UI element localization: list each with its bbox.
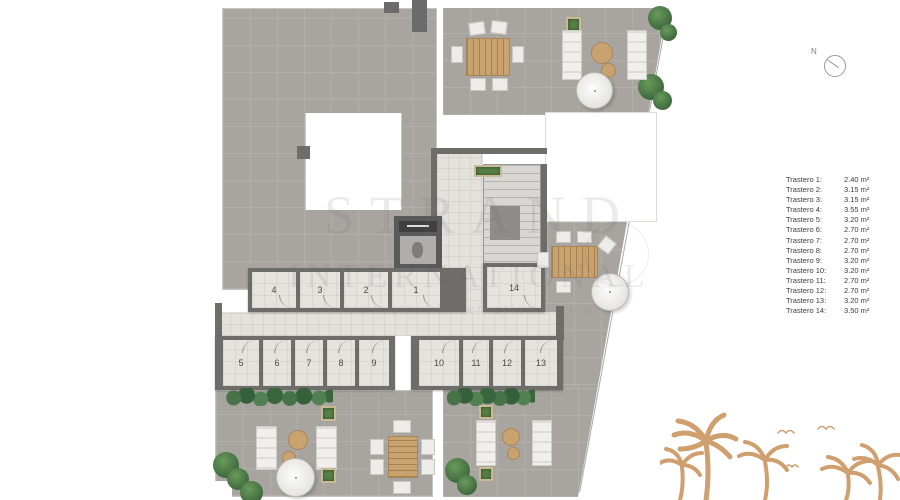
- legend-row: Trastero 1: 2.40 m²: [786, 175, 878, 185]
- watermark-brand: STRAND: [290, 184, 670, 246]
- rooftop-chimney: [412, 0, 427, 32]
- storage-room: 13: [525, 340, 557, 386]
- chair: [512, 46, 524, 63]
- legend-value: 2.70 m²: [844, 246, 878, 256]
- planter: [321, 468, 336, 483]
- dining-table: [388, 436, 418, 478]
- legend-row: Trastero 4: 3.55 m²: [786, 205, 878, 215]
- legend-label: Trastero 13:: [786, 296, 844, 306]
- chair: [468, 21, 486, 36]
- legend-value: 3.15 m²: [844, 195, 878, 205]
- storage-block-bottom-left: 5 6 7 8 9: [215, 336, 395, 390]
- planter: [321, 406, 336, 421]
- chair: [451, 46, 463, 63]
- legend-row: Trastero 8: 2.70 m²: [786, 246, 878, 256]
- room-number: 12: [493, 340, 521, 386]
- storage-room: 7: [295, 340, 323, 386]
- room-number: 9: [359, 340, 389, 386]
- compass-north-label: N: [811, 47, 817, 56]
- legend-value: 2.70 m²: [844, 225, 878, 235]
- legend-label: Trastero 9:: [786, 256, 844, 266]
- planter: [479, 467, 493, 481]
- legend-value: 2.70 m²: [844, 276, 878, 286]
- storage-room: 12: [493, 340, 521, 386]
- floor-plan-canvas: 4 3 2 1 14 5 6 7 8 9 10 11 12: [0, 0, 900, 500]
- side-table: [591, 42, 613, 64]
- legend-label: Trastero 7:: [786, 236, 844, 246]
- legend-label: Trastero 14:: [786, 306, 844, 316]
- storage-room: 9: [359, 340, 389, 386]
- chair: [421, 459, 435, 475]
- core-wall-top: [431, 148, 547, 154]
- sun-lounger: [562, 30, 582, 80]
- bush: [660, 24, 677, 41]
- chair: [490, 20, 507, 35]
- sun-lounger: [627, 30, 647, 80]
- sun-lounger: [256, 426, 277, 470]
- room-number: 6: [263, 340, 291, 386]
- corridor-left-wall: [215, 303, 222, 337]
- legend-row: Trastero 11: 2.70 m²: [786, 276, 878, 286]
- storage-room: 8: [327, 340, 355, 386]
- legend-value: 3.50 m²: [844, 306, 878, 316]
- storage-block-bottom-right: 10 11 12 13: [411, 336, 563, 390]
- storage-room: 11: [463, 340, 489, 386]
- legend-label: Trastero 8:: [786, 246, 844, 256]
- legend-label: Trastero 11:: [786, 276, 844, 286]
- room-number: 11: [463, 340, 489, 386]
- legend-label: Trastero 6:: [786, 225, 844, 235]
- chair: [492, 78, 508, 91]
- roof-hatch: [297, 146, 310, 159]
- legend-value: 3.15 m²: [844, 185, 878, 195]
- legend-row: Trastero 7: 2.70 m²: [786, 236, 878, 246]
- watermark-brand-sub: INTERNATIONAL: [250, 258, 690, 296]
- planter: [479, 405, 493, 419]
- watermark-website: www.strandinternational.com: [320, 302, 620, 318]
- hedge: [447, 388, 535, 406]
- legend-row: Trastero 10: 3.20 m²: [786, 266, 878, 276]
- legend-value: 3.20 m²: [844, 296, 878, 306]
- chair: [393, 420, 411, 433]
- side-table: [507, 447, 520, 460]
- chair: [470, 78, 486, 91]
- hedge: [225, 388, 333, 406]
- dining-table: [466, 38, 510, 76]
- legend-label: Trastero 3:: [786, 195, 844, 205]
- area-legend: Trastero 1: 2.40 m² Trastero 2: 3.15 m² …: [786, 175, 878, 316]
- chair: [370, 459, 384, 475]
- room-number: 10: [419, 340, 459, 386]
- legend-value: 3.55 m²: [844, 205, 878, 215]
- parasol: [576, 72, 613, 109]
- legend-value: 2.40 m²: [844, 175, 878, 185]
- bush: [240, 481, 263, 500]
- legend-label: Trastero 1:: [786, 175, 844, 185]
- legend-label: Trastero 4:: [786, 205, 844, 215]
- legend-label: Trastero 5:: [786, 215, 844, 225]
- legend-value: 3.20 m²: [844, 256, 878, 266]
- legend-row: Trastero 9: 3.20 m²: [786, 256, 878, 266]
- chair: [393, 481, 411, 494]
- legend-value: 3.20 m²: [844, 266, 878, 276]
- legend-value: 2.70 m²: [844, 286, 878, 296]
- legend-row: Trastero 12: 2.70 m²: [786, 286, 878, 296]
- room-number: 13: [525, 340, 557, 386]
- chair: [370, 439, 384, 455]
- legend-label: Trastero 10:: [786, 266, 844, 276]
- legend-label: Trastero 12:: [786, 286, 844, 296]
- side-table: [288, 430, 308, 450]
- legend-value: 2.70 m²: [844, 236, 878, 246]
- legend-row: Trastero 14: 3.50 m²: [786, 306, 878, 316]
- legend-row: Trastero 13: 3.20 m²: [786, 296, 878, 306]
- chair: [421, 439, 435, 455]
- legend-row: Trastero 2: 3.15 m²: [786, 185, 878, 195]
- room-number: 5: [223, 340, 259, 386]
- stair-planter: [474, 165, 502, 177]
- legend-row: Trastero 6: 2.70 m²: [786, 225, 878, 235]
- legend-row: Trastero 3: 3.15 m²: [786, 195, 878, 205]
- room-number: 7: [295, 340, 323, 386]
- storage-room: 5: [223, 340, 259, 386]
- parasol: [276, 458, 315, 497]
- storage-room: 10: [419, 340, 459, 386]
- sun-lounger: [316, 426, 337, 470]
- room-number: 8: [327, 340, 355, 386]
- rooftop-vent: [384, 2, 399, 13]
- sun-lounger: [476, 420, 496, 466]
- sun-lounger: [532, 420, 552, 466]
- palm-trees-graphic: [660, 405, 900, 500]
- legend-row: Trastero 5: 3.20 m²: [786, 215, 878, 225]
- bush: [653, 91, 672, 110]
- side-table: [502, 428, 520, 446]
- legend-value: 3.20 m²: [844, 215, 878, 225]
- bush: [457, 475, 477, 495]
- storage-room: 6: [263, 340, 291, 386]
- legend-label: Trastero 2:: [786, 185, 844, 195]
